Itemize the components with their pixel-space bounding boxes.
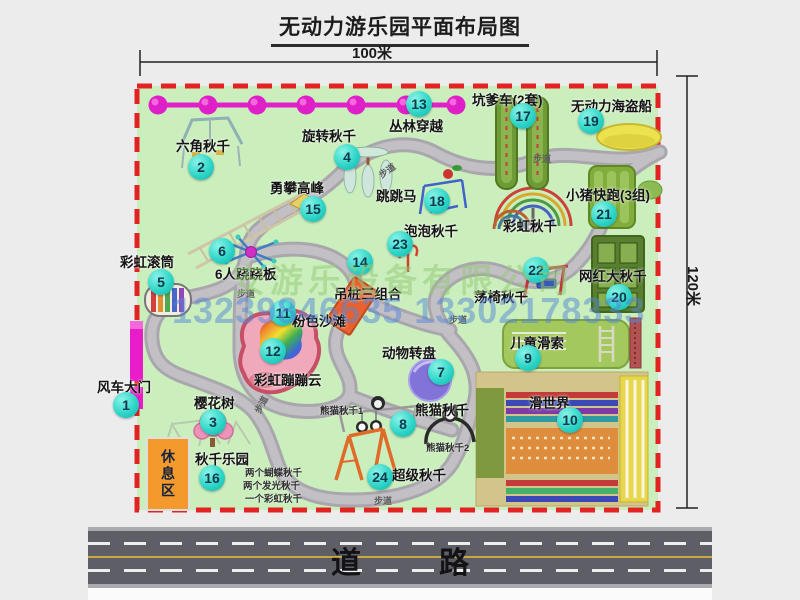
item-label-4: 旋转秋千 — [302, 125, 356, 145]
item-badge-18: 18 — [424, 188, 450, 214]
park-layout-map: 无动力游乐园平面布局图 — [0, 0, 800, 600]
item-label-24: 超级秋千 — [392, 464, 446, 484]
height-dimension-label: 120米 — [683, 266, 704, 306]
swing-park-note-2: 两个发光秋千 — [243, 478, 300, 492]
item-label-20: 网红大秋千 — [579, 265, 647, 285]
item-label-15: 勇攀高峰 — [270, 177, 324, 197]
rest-area-box: 休息区 — [146, 437, 190, 511]
rest-area-label: 休息区 — [158, 449, 178, 500]
pirate-ship-icon — [597, 124, 661, 150]
road: 道 路 — [88, 527, 712, 588]
item-badge-2: 2 — [188, 154, 214, 180]
walkway-label-2: 步道 — [533, 152, 551, 165]
item-label-12: 彩虹蹦蹦云 — [254, 369, 322, 389]
item-badge-12: 12 — [260, 338, 286, 364]
item-label-5: 彩虹滚筒 — [120, 251, 174, 271]
item-badge-5: 5 — [148, 269, 174, 295]
item-badge-7: 7 — [428, 359, 454, 385]
item-badge-21: 21 — [591, 201, 617, 227]
width-dimension-label: 100米 — [352, 42, 392, 63]
item-badge-1: 1 — [113, 392, 139, 418]
road-label: 道 路 — [88, 538, 712, 582]
page-title-text: 无动力游乐园平面布局图 — [271, 11, 529, 47]
item-badge-4: 4 — [334, 144, 360, 170]
item-badge-15: 15 — [300, 196, 326, 222]
item-badge-17: 17 — [510, 103, 536, 129]
item-badge-24: 24 — [367, 464, 393, 490]
item-badge-9: 9 — [515, 345, 541, 371]
panda-swing-2-label: 熊猫秋千2 — [426, 440, 469, 454]
item-badge-16: 16 — [199, 465, 225, 491]
item-label-7: 动物转盘 — [382, 342, 436, 362]
swing-park-note-1: 两个蝴蝶秋千 — [245, 465, 302, 479]
item-label-23: 泡泡秋千 — [404, 220, 458, 240]
walkway-label-6: 步道 — [374, 494, 392, 507]
road-shoulder — [88, 588, 712, 600]
item-label-2: 六角秋千 — [176, 135, 230, 155]
item-label-16: 秋千乐园 — [195, 448, 249, 468]
swing-park-note-3: 一个彩虹秋千 — [245, 491, 302, 505]
panda-swing-1-label: 熊猫秋千1 — [320, 403, 363, 417]
watermark-phone: 13239846635 13302178333 — [172, 290, 645, 332]
page-title: 无动力游乐园平面布局图 — [0, 11, 800, 47]
item-label-13: 丛林穿越 — [389, 115, 443, 135]
item-badge-10: 10 — [557, 407, 583, 433]
item-badge-3: 3 — [200, 409, 226, 435]
item-label-8: 熊猫秋千 — [415, 399, 469, 419]
item-label-18: 跳跳马 — [376, 185, 417, 205]
item-badge-8: 8 — [390, 411, 416, 437]
rainbow-swing-label: 彩虹秋千 — [503, 215, 557, 235]
item-badge-13: 13 — [406, 91, 432, 117]
item-badge-19: 19 — [578, 108, 604, 134]
